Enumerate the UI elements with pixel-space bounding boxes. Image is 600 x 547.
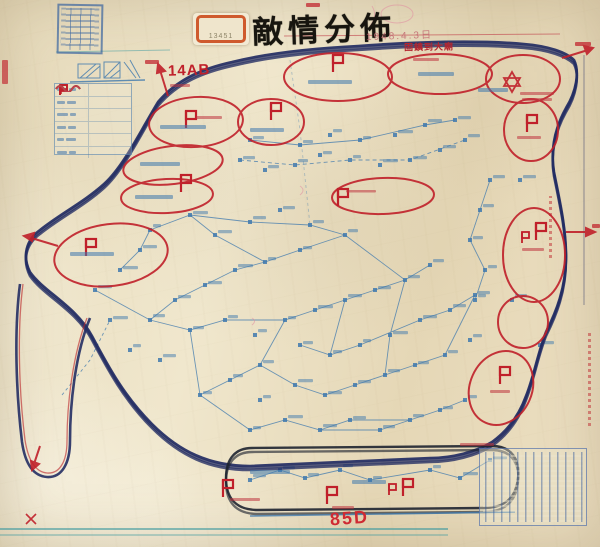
- archive-sticker-frame: 13451: [196, 15, 246, 43]
- archive-sticker: 13451: [193, 13, 249, 45]
- red-vertical-annotation: [588, 330, 591, 426]
- archive-number: 13451: [209, 33, 233, 40]
- archive-stamp-grid: [61, 8, 100, 51]
- notes-block: [479, 448, 587, 526]
- legend-row: [55, 122, 131, 135]
- legend-row: [55, 109, 131, 122]
- legend-label-marks: [55, 122, 89, 134]
- legend-label-marks: [55, 134, 89, 146]
- unit-label-14ab: 14AB: [168, 61, 211, 79]
- legend-row: [55, 134, 131, 147]
- legend-label-marks: [55, 97, 89, 109]
- notes-handwriting: [483, 452, 583, 522]
- enemy-flag-icons: [86, 55, 546, 504]
- legend-label-marks: [55, 109, 89, 121]
- unit-label-85d: 85D: [329, 507, 369, 531]
- village-marks: [93, 116, 554, 482]
- legend-row: [55, 147, 131, 159]
- map-legend: [54, 83, 132, 155]
- route-label: 固鎮到大廟: [404, 40, 454, 54]
- archive-stamp: [57, 4, 104, 55]
- red-vertical-annotation: [549, 196, 552, 258]
- legend-label-marks: [55, 147, 89, 159]
- map-canvas: 敵情分佈 1948.4.3日 固鎮到大廟 14AB 85D 13451: [0, 0, 600, 547]
- legend-sketch: [70, 60, 145, 82]
- legend-row: [55, 97, 131, 110]
